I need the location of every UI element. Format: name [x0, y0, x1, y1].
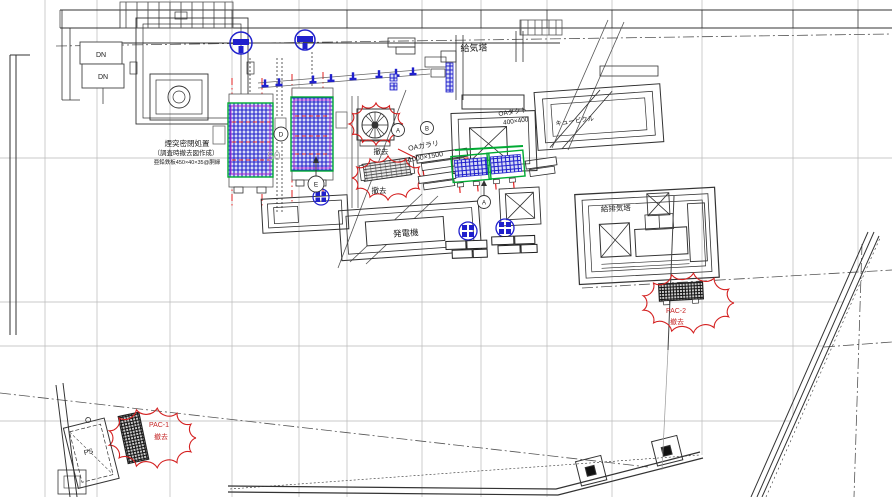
supply-exhaust-tower-label: 給排気塔: [601, 202, 632, 214]
pac2-unit: [659, 282, 704, 305]
oa-louver-label-1: OAガラリ: [407, 138, 439, 152]
dn-label-1: DN: [96, 52, 106, 59]
background-dim: 50: [267, 149, 281, 163]
chimney-note-line2: （調査時撤去図作成）: [154, 148, 219, 157]
ps-label: PS: [83, 448, 94, 457]
equipment-pad: [261, 195, 349, 233]
ref-bubble-letter-2: E: [314, 182, 319, 189]
drain-symbol-2: [459, 222, 477, 240]
cooling-tower-1: [228, 94, 273, 193]
block-pads: [446, 235, 538, 258]
ref-bubble-letter-1: D: [279, 132, 284, 139]
supply-exhaust-tower: [575, 187, 720, 284]
supply-tower-label: 給気塔: [460, 42, 487, 54]
vent-symbol-2: [295, 30, 315, 50]
pump-unit-2: [487, 150, 526, 190]
drain-symbol-3: [496, 219, 514, 237]
wall-column-box-2: [652, 435, 683, 466]
chimney-note-line3: 亜鉛鉄板450×40×35@胴縁: [154, 158, 221, 166]
cubicle-label: キュービクル: [555, 113, 595, 127]
ref-bubble-letter-3: A: [396, 129, 400, 135]
cad-drawing-viewport: 煙突密閉処置 （調査時撤去図作成） 亜鉛鉄板450×40×35@胴縁 給気塔 O…: [0, 0, 892, 497]
pac1-label: PAC-1: [149, 422, 169, 429]
roof-plan-drawing: 煙突密閉処置 （調査時撤去図作成） 亜鉛鉄板450×40×35@胴縁 給気塔 O…: [0, 0, 892, 497]
column-line: [668, 196, 674, 350]
ref-bubble-letter-4: B: [425, 127, 429, 133]
blue-slot: [446, 63, 453, 92]
wall-column-box-1: [576, 455, 607, 486]
removal-louver-label: 撤去: [372, 185, 387, 195]
removal-pac2-label: 撤去: [670, 317, 684, 326]
diagonal-boundary: [751, 232, 879, 497]
x-box-small: [499, 187, 541, 226]
chimney-note-line1: 煙突密閉処置: [165, 138, 210, 148]
louver-hatch-top: [520, 20, 562, 35]
ref-bubble-letter-5: A: [482, 201, 486, 207]
removal-pac1-label: 撤去: [154, 432, 168, 441]
text-labels: 煙突密閉処置 （調査時撤去図作成） 亜鉛鉄板450×40×35@胴縁 給気塔 O…: [83, 42, 686, 458]
pac2-label: PAC-2: [666, 308, 686, 315]
removal-fan-label: 撤去: [374, 146, 389, 156]
dn-label-2: DN: [98, 74, 108, 81]
generator-label: 発電機: [393, 227, 420, 239]
cooling-tower-2: [291, 88, 333, 186]
pipe-run: [258, 67, 430, 88]
